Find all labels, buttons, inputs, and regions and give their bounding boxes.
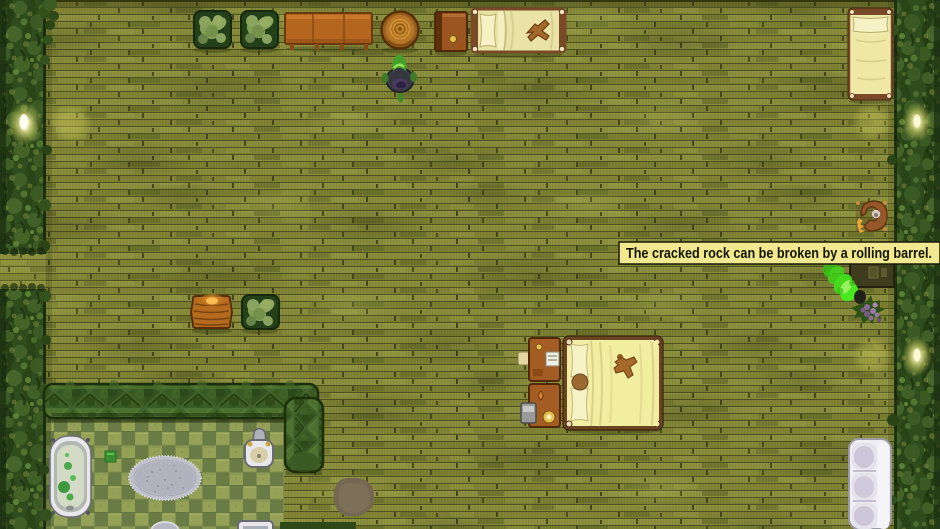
svg-text:The cracked rock can be broken: The cracked rock can be broken by a roll… bbox=[626, 245, 932, 262]
